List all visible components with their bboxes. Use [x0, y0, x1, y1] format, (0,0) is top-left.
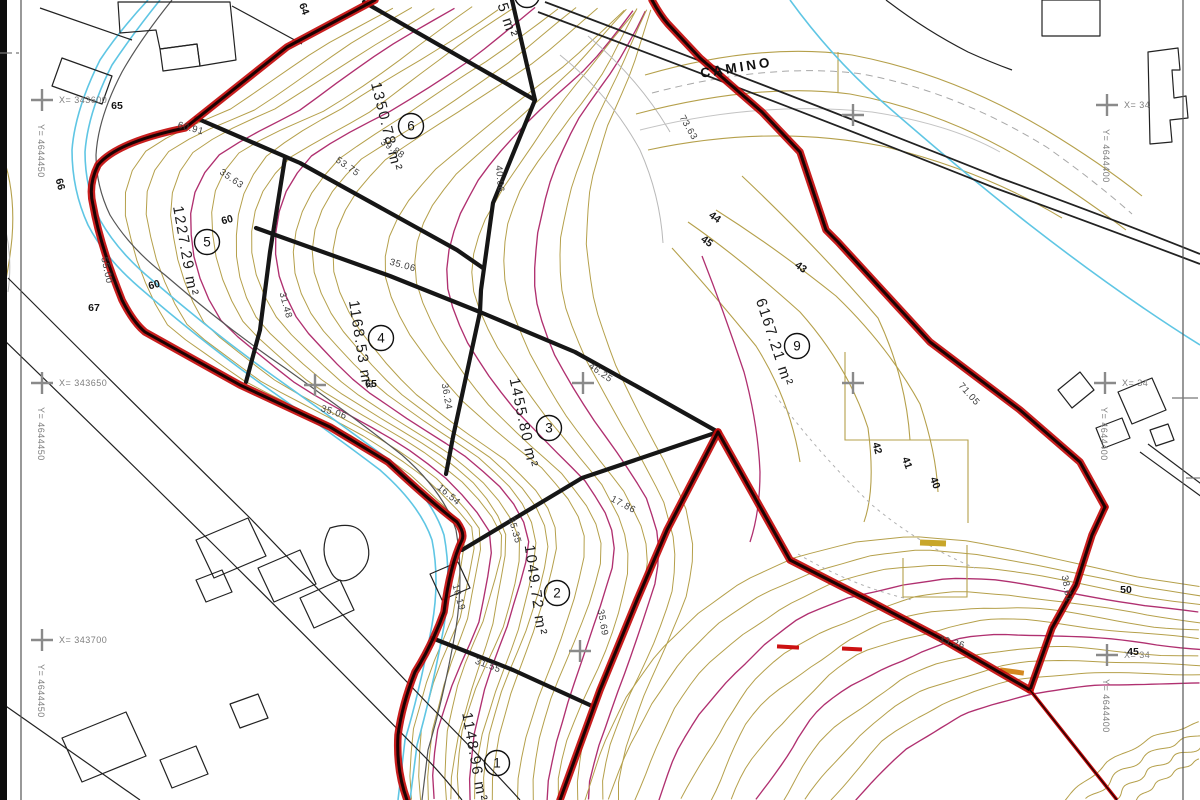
grid-cross	[1094, 372, 1116, 394]
dimension-label: 31.48	[277, 291, 295, 320]
dimension-label: 38.61	[1059, 574, 1074, 602]
dimension-label: 60.91	[176, 120, 205, 138]
yellow-survey-dash	[920, 540, 946, 547]
red-survey-dash	[777, 644, 799, 649]
parcel-area-label: 1455.80 m²	[506, 376, 542, 469]
building-outline	[160, 44, 200, 71]
building-outline	[196, 570, 232, 602]
elevation-label: 65	[111, 100, 123, 112]
fence-line	[232, 6, 302, 44]
dimension-label: 35.63	[217, 167, 245, 191]
grid-cross-y-label: Y= 4644400	[1101, 679, 1111, 733]
elevation-label: 41	[899, 455, 914, 470]
elevation-label: 45	[698, 233, 715, 250]
dimension-label: 31.55	[473, 656, 502, 675]
elevation-label: 60	[220, 213, 235, 228]
dimension-label: 53.75	[333, 155, 361, 179]
contour-lines-sparse	[0, 36, 975, 600]
road-edge	[545, 2, 1200, 254]
dimension-label: 36.24	[439, 382, 454, 410]
page-edge	[0, 0, 7, 800]
dimension-label: 35.35	[506, 516, 524, 545]
perimeter-red-halo	[718, 432, 1030, 690]
dimension-label: 16.19	[450, 583, 468, 612]
path-centerline	[652, 71, 1132, 214]
contour-index-line	[535, 11, 659, 799]
grid-cross-x-label: X= 34	[1122, 378, 1148, 388]
elevation-label: 64	[296, 1, 311, 16]
elevation-label: 67	[88, 302, 100, 314]
building-outline	[118, 2, 236, 66]
elevation-label: 50	[1120, 584, 1132, 596]
building-outline	[1042, 0, 1100, 36]
contour-line	[805, 661, 1200, 800]
parcel-number-circle-partial	[515, 0, 540, 8]
dimension-label: 17.86	[609, 494, 638, 516]
grid-cross-y-label: Y= 4644400	[1101, 129, 1111, 183]
parcel-boundary	[512, 0, 535, 100]
parcel-area-label: 1227.29 m²	[169, 204, 202, 297]
building-outline	[1058, 372, 1094, 408]
contour-line	[681, 592, 1200, 799]
contour-line	[585, 537, 1200, 800]
contour-line	[831, 673, 1200, 800]
elevation-label: 42	[870, 441, 885, 456]
road-label-camino: CAMINO	[699, 54, 773, 80]
grid-cross-y-label: Y= 4644450	[36, 407, 46, 461]
parcel-number: 9	[793, 339, 801, 354]
parcel-number: 2	[553, 586, 561, 601]
parcel-boundary	[196, 118, 483, 268]
dimension-label: 35.06	[388, 257, 417, 275]
contour-line	[711, 608, 1199, 800]
building-outline	[62, 712, 146, 782]
parcel-number: 3	[545, 421, 553, 436]
parcel-number: 1	[493, 756, 501, 771]
building-outline	[1150, 424, 1174, 446]
contour-line	[1114, 748, 1200, 800]
road-edge	[0, 336, 462, 800]
building-outline	[196, 518, 266, 578]
grid-cross	[31, 372, 53, 394]
contour-faint	[588, 36, 670, 132]
road-edge	[8, 278, 520, 800]
red-survey-dash	[842, 646, 862, 651]
road-spur	[886, 0, 1012, 70]
road-edge	[538, 12, 1200, 264]
pond-outline	[324, 525, 369, 580]
grid-cross	[1096, 94, 1118, 116]
contour-line	[1136, 759, 1199, 800]
contour-index-line	[856, 683, 1200, 800]
elevation-label: 60	[147, 278, 162, 293]
elevation-label: 66	[53, 177, 68, 192]
parcel-area-label: 1350.78 m²	[367, 80, 406, 173]
dimension-label: 40.06	[493, 165, 506, 193]
perimeter-red-core	[718, 432, 1030, 690]
grid-cross	[304, 374, 326, 396]
fence-line	[1148, 444, 1200, 492]
building-outline	[1148, 48, 1188, 144]
contour-line	[608, 550, 1200, 799]
grid-cross-x-label: X= 343650	[59, 378, 107, 388]
grid-cross	[31, 629, 53, 651]
parcel-number: 6	[407, 119, 415, 134]
parcel-boundary	[480, 312, 647, 392]
contour-faint	[560, 55, 663, 243]
parcel-boundary	[647, 392, 718, 432]
building-outline	[160, 746, 208, 788]
contour-line	[716, 210, 938, 492]
elevation-label: 40	[927, 475, 942, 490]
perimeter-boundary-red	[91, 0, 1117, 800]
stream-line	[790, 0, 1200, 345]
grid-cross-y-label: Y= 4644400	[1099, 407, 1109, 461]
parcel-number: 4	[377, 331, 385, 346]
elevation-label: 45	[1127, 646, 1139, 658]
contour-line	[560, 10, 675, 800]
topographic-parcel-map: CAMINO X= 343600Y= 4644450X= 343650Y= 46…	[0, 0, 1200, 800]
parcel-area-label: 6167.21 m²	[752, 296, 797, 389]
grid-cross-y-label: Y= 4644450	[36, 124, 46, 178]
path-edge	[648, 136, 1062, 218]
grid-cross-x-label: X= 343700	[59, 635, 107, 645]
grid-cross-y-label: Y= 4644450	[36, 664, 46, 718]
dimension-label: 35.69	[595, 608, 610, 636]
parcel-area-label-partial: 5 m²	[494, 1, 521, 41]
contour-index-line	[659, 578, 1198, 800]
grid-cross-x-label: X= 34	[1124, 100, 1150, 110]
contour-index-line	[702, 256, 760, 542]
elevation-label: 44	[706, 209, 723, 226]
grid-cross-x-label: X= 343600	[59, 95, 107, 105]
survey-marks	[777, 540, 1024, 676]
grid-cross	[31, 89, 53, 111]
contour-line	[472, 10, 636, 798]
parcel-number: 5	[203, 235, 211, 250]
dimension-label: 71.05	[956, 381, 982, 408]
building-outline	[230, 694, 268, 728]
parcel-boundary	[480, 100, 535, 312]
